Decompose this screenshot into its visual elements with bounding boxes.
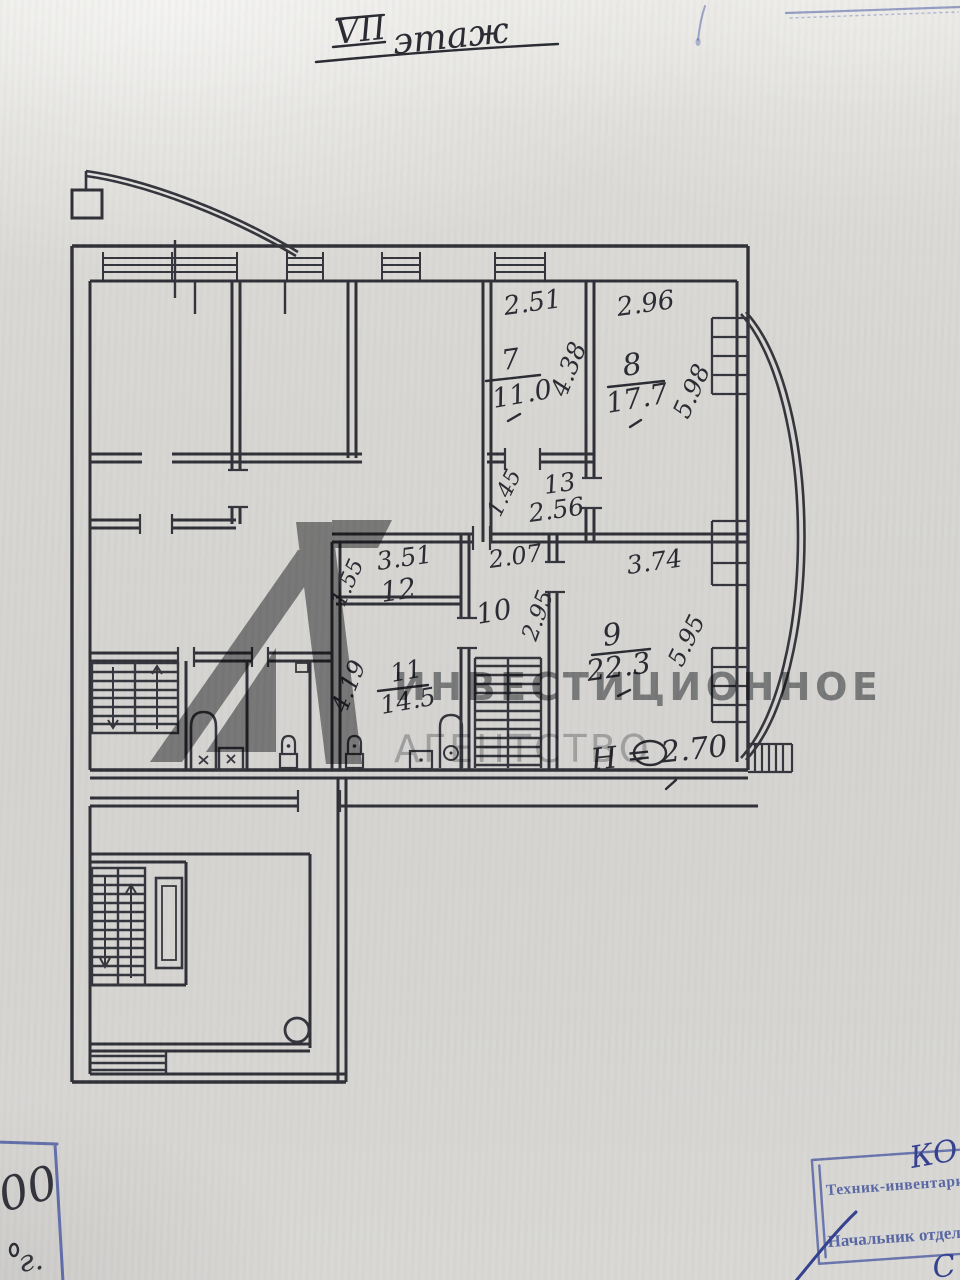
room13-area: 2.56 xyxy=(526,491,586,528)
garbage-chute-circle xyxy=(285,1018,309,1042)
room7-number: 7 xyxy=(499,342,521,377)
room12-number: 12 xyxy=(378,571,418,609)
corner-sink xyxy=(296,663,308,672)
room10-width: 2.07 xyxy=(486,539,545,574)
title-word: этаж xyxy=(391,10,511,63)
room8-number: 8 xyxy=(620,347,644,384)
watermark-logo-serif xyxy=(332,520,392,548)
scanned-floor-plan-page: VII этаж xyxy=(0,0,960,1280)
page-title: VII этаж xyxy=(316,8,558,63)
handwritten-number: 00 xyxy=(0,1155,63,1223)
stamp-role-1: Техник-инвентаризац xyxy=(825,1171,960,1199)
handwritten-year-suffix: г. xyxy=(16,1242,45,1280)
room7-area-tick xyxy=(508,414,520,421)
height-note-tick xyxy=(666,780,676,789)
room10-depth: 2.95 xyxy=(517,587,559,645)
handwritten-letter: С xyxy=(930,1248,958,1280)
stamp-bottom-left: 00 г. xyxy=(0,1142,63,1280)
top-left-arc xyxy=(86,171,298,256)
room-labels: 2.51 7 11.0 4.38 2.96 8 17.7 5.98 1.45 1… xyxy=(325,284,729,789)
staircase-left xyxy=(92,663,178,733)
toilet xyxy=(280,736,297,768)
room8-depth: 5.98 xyxy=(667,360,716,423)
elevator-shaft xyxy=(156,878,182,968)
handwritten-initials: КО xyxy=(906,1133,960,1176)
right-wall-windows xyxy=(712,318,748,722)
top-stamp-traces xyxy=(696,6,960,46)
entry-steps xyxy=(90,1050,166,1074)
room7-width: 2.51 xyxy=(501,284,563,322)
watermark-line2: АГЕНТСТВО xyxy=(394,727,652,771)
stamp-role-2: Начальник отдела: xyxy=(827,1222,960,1251)
room9-depth: 5.95 xyxy=(662,610,711,670)
room8-area: 17.7 xyxy=(603,377,670,420)
wall-stubs-and-ticks xyxy=(175,240,285,314)
watermark-line1: ИНВЕСТИЦИОННОЕ xyxy=(394,665,882,709)
room8-area-tick xyxy=(630,420,641,427)
room12-width: 3.51 xyxy=(375,539,434,575)
room10-number: 10 xyxy=(473,592,514,631)
pen-flourish xyxy=(10,1244,18,1256)
pen-mark xyxy=(698,6,705,40)
room8-width: 2.96 xyxy=(614,285,676,323)
top-wall-windows xyxy=(103,252,545,280)
room9-width: 3.74 xyxy=(625,543,684,579)
floor-plan-svg: VII этаж xyxy=(0,0,960,1280)
